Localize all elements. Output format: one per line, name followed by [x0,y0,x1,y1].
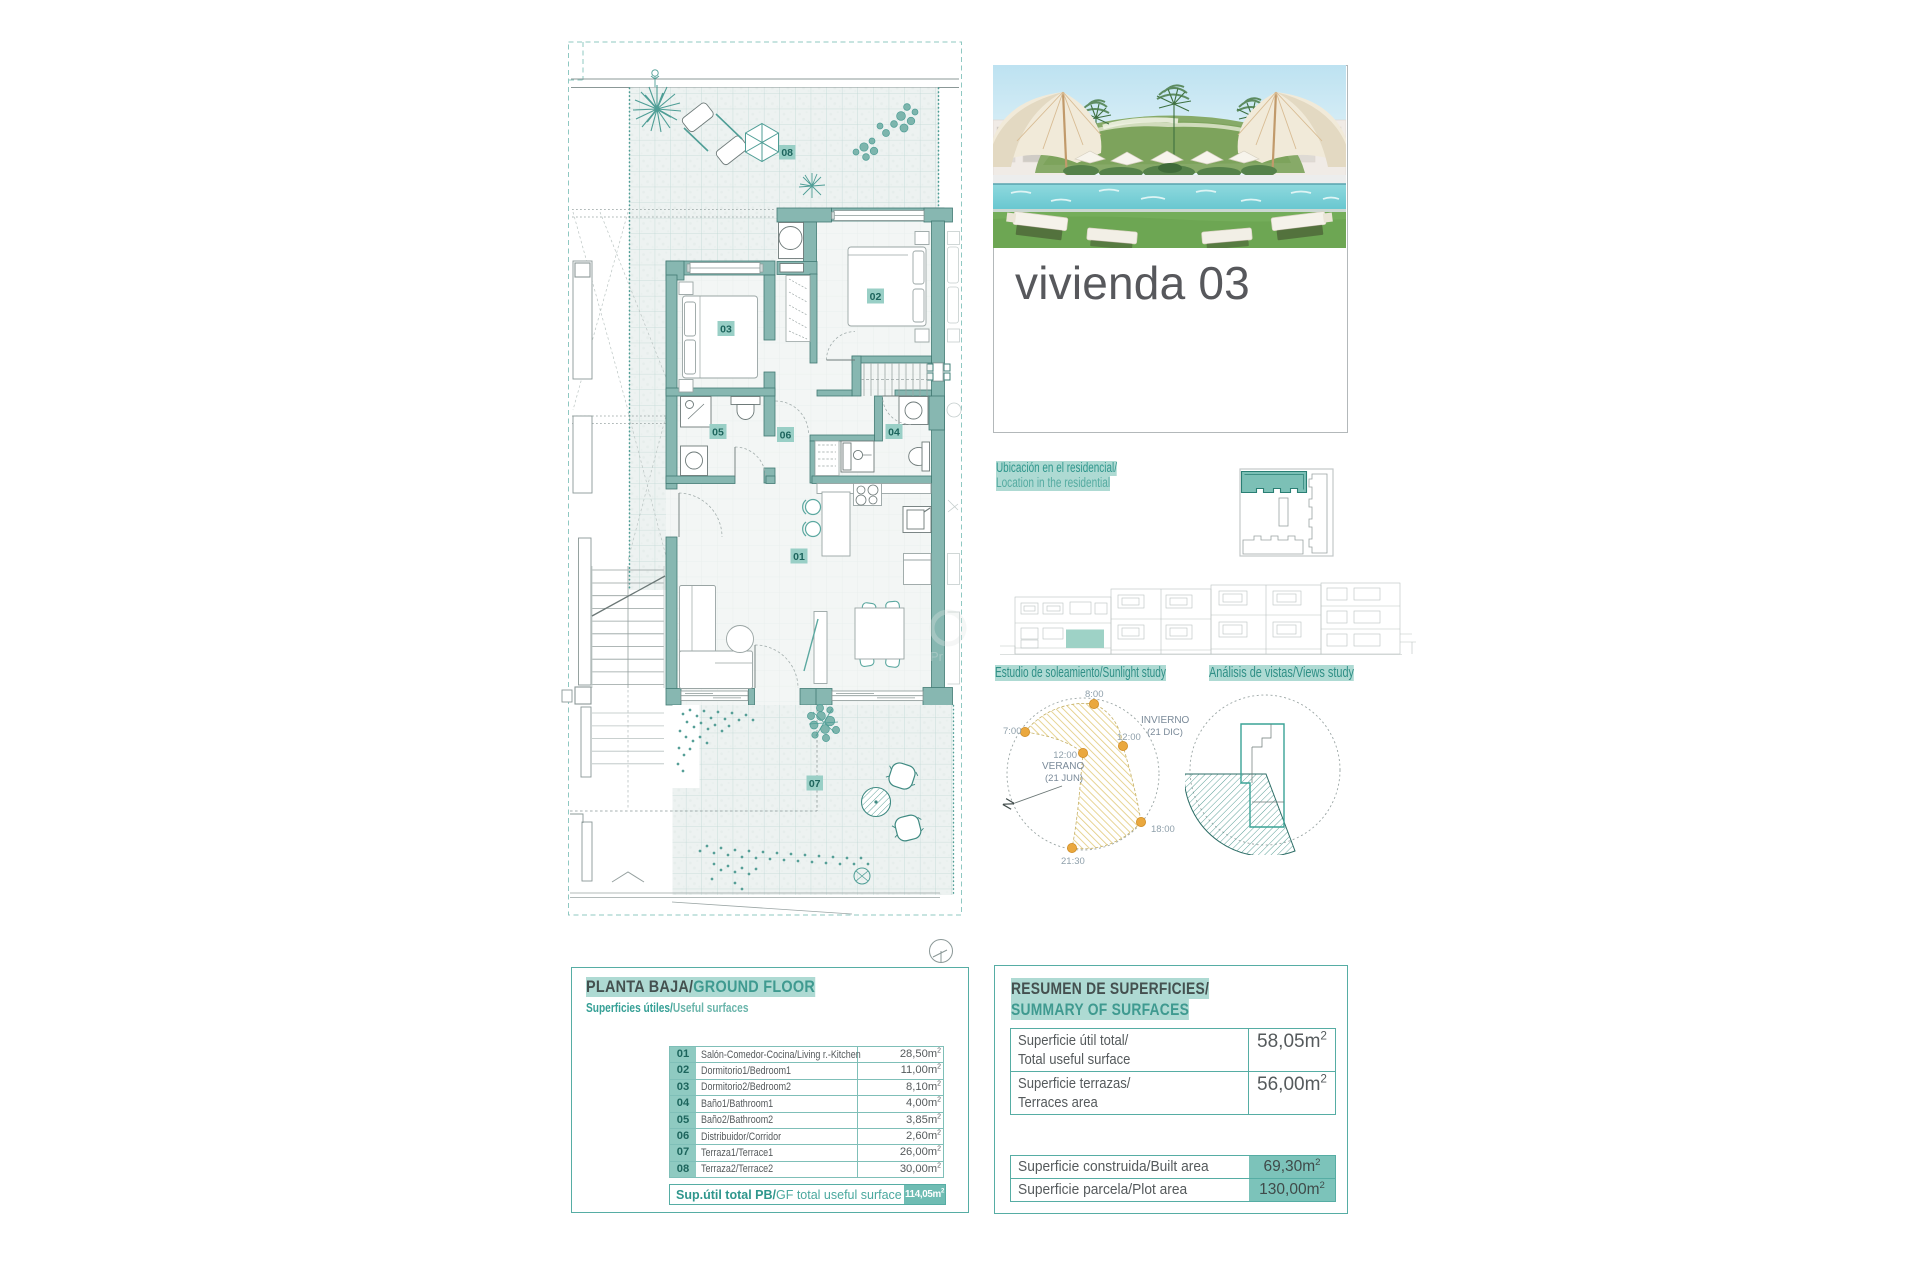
svg-text:05: 05 [712,427,724,439]
svg-text:01: 01 [793,551,805,563]
svg-text:08: 08 [781,147,793,159]
svg-text:04: 04 [888,427,900,439]
svg-text:18:00: 18:00 [1151,824,1175,835]
svg-text:12:00: 12:00 [1053,750,1077,761]
svg-text:02: 02 [870,291,882,303]
svg-text:03: 03 [720,324,732,336]
svg-text:07: 07 [809,778,821,790]
svg-text:12:00: 12:00 [1117,732,1141,743]
svg-text:(21 DIC): (21 DIC) [1147,727,1183,738]
svg-text:INVIERNO: INVIERNO [1141,715,1190,726]
svg-text:(21 JUN): (21 JUN) [1045,773,1083,784]
svg-text:VERANO: VERANO [1042,761,1084,772]
svg-text:8:00: 8:00 [1085,689,1104,700]
svg-text:06: 06 [780,430,792,442]
svg-text:N: N [999,795,1018,812]
svg-text:Pr: Pr [930,649,944,664]
svg-text:7:00: 7:00 [1003,726,1022,737]
svg-text:21:30: 21:30 [1061,856,1085,867]
